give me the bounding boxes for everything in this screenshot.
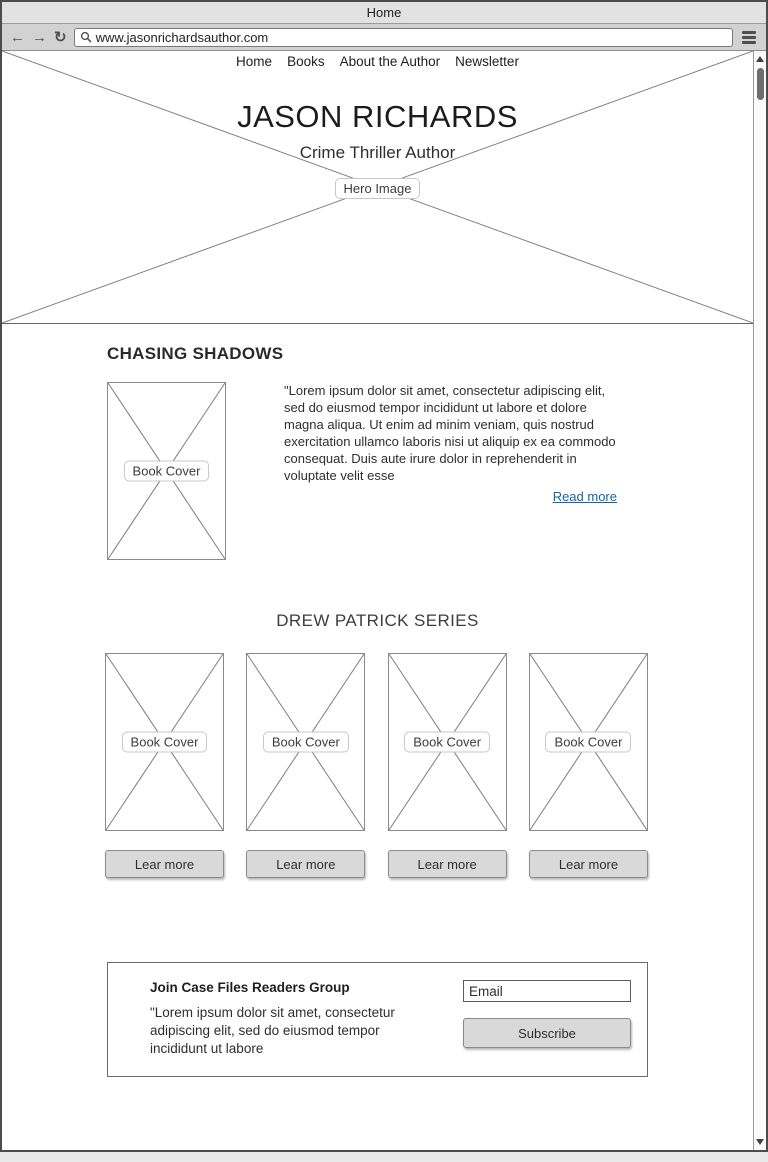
nav-link-home[interactable]: Home bbox=[236, 54, 272, 69]
author-name-title: JASON RICHARDS bbox=[2, 99, 753, 135]
featured-book-cover-placeholder: Book Cover bbox=[107, 382, 226, 560]
forward-icon[interactable]: → bbox=[32, 30, 47, 45]
page-main: Home Books About the Author Newsletter J… bbox=[2, 51, 753, 1150]
subscribe-button[interactable]: Subscribe bbox=[463, 1018, 631, 1048]
series-book-cover-placeholder: Book Cover bbox=[529, 653, 648, 831]
menu-icon[interactable] bbox=[740, 29, 758, 46]
hero-text-block: JASON RICHARDS Crime Thriller Author Her… bbox=[2, 99, 753, 199]
hero-image-label: Hero Image bbox=[335, 178, 421, 199]
window-title: Home bbox=[367, 5, 402, 20]
url-text[interactable]: www.jasonrichardsauthor.com bbox=[96, 30, 269, 45]
learn-more-button[interactable]: Lear more bbox=[105, 850, 224, 878]
read-more-link[interactable]: Read more bbox=[553, 489, 617, 504]
learn-more-button[interactable]: Lear more bbox=[529, 850, 648, 878]
series-book-cover-placeholder: Book Cover bbox=[105, 653, 224, 831]
book-cover-label: Book Cover bbox=[124, 461, 210, 482]
refresh-icon[interactable]: ↻ bbox=[54, 30, 67, 45]
book-excerpt: "Lorem ipsum dolor sit amet, consectetur… bbox=[284, 382, 629, 484]
newsletter-signup-box: Join Case Files Readers Group "Lorem ips… bbox=[107, 962, 648, 1077]
url-bar[interactable]: www.jasonrichardsauthor.com bbox=[74, 28, 733, 47]
book-cover-label: Book Cover bbox=[122, 732, 208, 753]
scroll-up-icon[interactable] bbox=[756, 56, 764, 62]
learn-more-button[interactable]: Lear more bbox=[246, 850, 365, 878]
page-content: Home Books About the Author Newsletter J… bbox=[2, 51, 766, 1150]
scroll-down-icon[interactable] bbox=[756, 1139, 764, 1145]
back-icon[interactable]: ← bbox=[10, 30, 25, 45]
site-nav: Home Books About the Author Newsletter bbox=[2, 52, 753, 71]
series-book-cover-placeholder: Book Cover bbox=[246, 653, 365, 831]
browser-window: Home ← → ↻ www.jasonrichardsauthor.com bbox=[0, 0, 768, 1152]
vertical-scrollbar[interactable] bbox=[753, 51, 766, 1150]
series-heading: DREW PATRICK SERIES bbox=[2, 611, 753, 631]
author-tagline: Crime Thriller Author bbox=[2, 143, 753, 163]
book-cover-label: Book Cover bbox=[546, 732, 632, 753]
learn-more-button[interactable]: Lear more bbox=[388, 850, 507, 878]
series-section: DREW PATRICK SERIES Book Cover Book Cove… bbox=[2, 611, 753, 878]
newsletter-text: "Lorem ipsum dolor sit amet, consectetur… bbox=[150, 1004, 418, 1058]
nav-link-newsletter[interactable]: Newsletter bbox=[455, 54, 519, 69]
featured-heading: CHASING SHADOWS bbox=[107, 344, 648, 364]
hero-image-placeholder: Home Books About the Author Newsletter J… bbox=[2, 51, 753, 324]
nav-link-about[interactable]: About the Author bbox=[340, 54, 441, 69]
email-field[interactable] bbox=[463, 980, 631, 1002]
nav-link-books[interactable]: Books bbox=[287, 54, 325, 69]
window-titlebar: Home bbox=[2, 2, 766, 24]
book-cover-label: Book Cover bbox=[263, 732, 349, 753]
scrollbar-thumb[interactable] bbox=[757, 68, 764, 100]
browser-toolbar: ← → ↻ www.jasonrichardsauthor.com bbox=[2, 24, 766, 51]
book-cover-label: Book Cover bbox=[404, 732, 490, 753]
window-bottom-frame bbox=[0, 1152, 768, 1162]
search-icon bbox=[80, 31, 92, 43]
featured-book-section: CHASING SHADOWS Book Cover "Lorem ipsum … bbox=[107, 344, 648, 560]
newsletter-heading: Join Case Files Readers Group bbox=[150, 980, 418, 995]
series-book-cover-placeholder: Book Cover bbox=[388, 653, 507, 831]
